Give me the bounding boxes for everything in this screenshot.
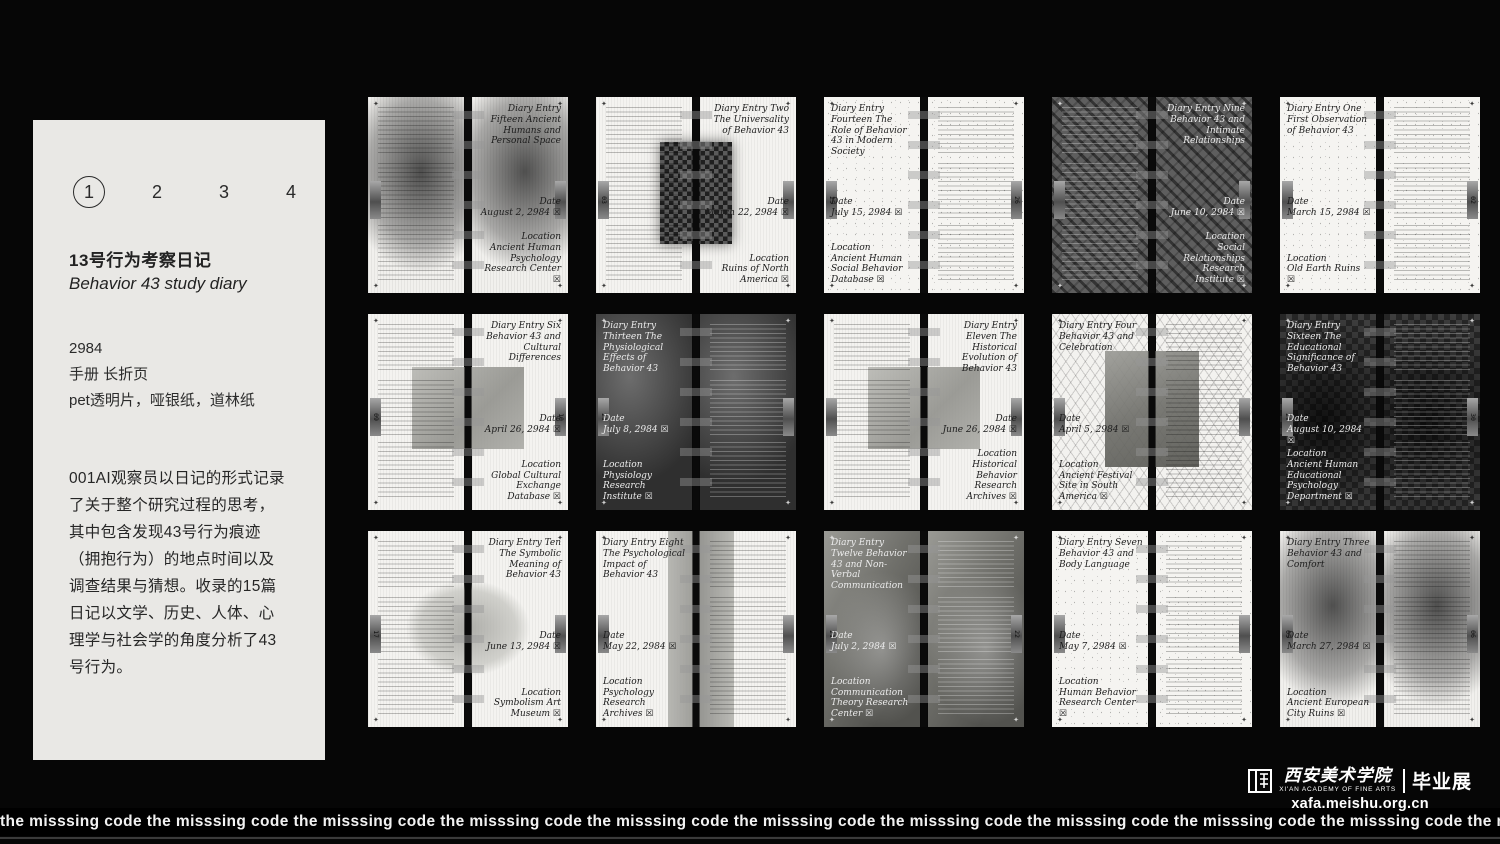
diary-entry-location: Location Ruins of North America ☒ (705, 254, 789, 286)
location-value: Human Behavior Research Center (1059, 688, 1136, 709)
micro-text-block (606, 225, 682, 281)
location-label: Location (933, 449, 1017, 460)
micro-text-block (1394, 597, 1470, 655)
diary-entry-date: Date March 15, 2984 ☒ (1287, 197, 1371, 219)
checkbox-icon: ☒ (1121, 425, 1129, 435)
diary-entry-location: Location Ancient Human Psychology Resear… (477, 232, 561, 286)
date-value: March 15, 2984 (1287, 208, 1360, 218)
spreads-grid: ✦ ✦ ✦ ✦ Diary Entry Fifteen Ancient Huma… (368, 97, 1480, 727)
date-value: July 2, 2984 (831, 642, 886, 652)
location-label: Location (1287, 688, 1371, 699)
date-value: May 7, 2984 (1059, 642, 1116, 652)
diary-spread: ✦ ✦ ✦ ✦ Diary Entry Eleven The Historica… (824, 314, 1024, 510)
location-label: Location (1059, 677, 1143, 688)
date-value: June 26, 2984 (943, 425, 1006, 435)
diary-entry-date: Date July 8, 2984 ☒ (603, 414, 687, 436)
location-label: Location (603, 460, 687, 471)
sparkle-icon: ✦ (373, 317, 379, 325)
checkbox-icon: ☒ (660, 425, 668, 435)
diary-entry-location: Location Psychology Research Archives ☒ (603, 677, 687, 720)
checkbox-icon: ☒ (888, 642, 896, 652)
micro-text-block (938, 107, 1014, 153)
sparkle-icon: ✦ (601, 100, 607, 108)
sparkle-icon: ✦ (373, 282, 379, 290)
sparkle-icon: ✦ (1469, 100, 1475, 108)
page-edge-tab: 17 (370, 615, 381, 653)
location-value: Global Cultural Exchange Database (491, 471, 561, 503)
diary-entry-date: Date April 5, 2984 ☒ (1059, 414, 1143, 436)
ticker-text: the misssing code the misssing code the … (0, 808, 1500, 836)
location-label: Location (1287, 449, 1371, 460)
date-label: Date (1161, 197, 1245, 208)
checkbox-icon: ☒ (668, 642, 676, 652)
checkbox-icon: ☒ (1059, 709, 1067, 719)
page-number: 09 (371, 413, 379, 421)
checkbox-icon: ☒ (1363, 642, 1371, 652)
spread-page-right: ✦ ✦ (1156, 314, 1252, 510)
micro-text-block (710, 659, 786, 715)
diary-entry-date: Date August 10, 2984 ☒ (1287, 414, 1371, 446)
sparkle-icon: ✦ (785, 317, 791, 325)
diary-spread: ✦ ✦ 23 ✦ ✦ Diary Entry Thirteen The Phys… (596, 314, 796, 510)
micro-text-block (938, 541, 1014, 587)
location-value: Symbolism Art Museum (494, 698, 561, 719)
sparkle-icon: ✦ (373, 534, 379, 542)
diary-entry-location: Location Historical Behavior Research Ar… (933, 449, 1017, 503)
date-label: Date (705, 197, 789, 208)
micro-text-block (378, 225, 454, 281)
diary-entry-title: Diary Entry Seven Behavior 43 and Body L… (1059, 538, 1143, 570)
micro-text-block (1394, 225, 1470, 281)
checkbox-icon: ☒ (1337, 709, 1345, 719)
micro-text-block (1062, 225, 1138, 281)
page-edge-tab (783, 615, 794, 653)
sparkle-icon: ✦ (601, 282, 607, 290)
diary-entry-date: Date May 22, 2984 ☒ (603, 631, 687, 653)
page-number: 22 (1012, 630, 1020, 638)
location-value: Ancient Human Psychology Research Center (484, 243, 561, 275)
page-edge-tab (370, 181, 381, 219)
location-label: Location (477, 460, 561, 471)
project-meta: 2984 手册 长折页 pet透明片，哑银纸，道林纸 (69, 336, 325, 414)
location-label: Location (831, 243, 915, 254)
sparkle-icon: ✦ (1241, 499, 1247, 507)
diary-entry-date: Date June 26, 2984 ☒ (933, 414, 1017, 436)
date-value: August 10, 2984 (1287, 425, 1362, 435)
diary-entry-date: Date April 26, 2984 ☒ (477, 414, 561, 436)
micro-text-block (1166, 597, 1242, 655)
diary-spread: ✦ ✦ ✦ ✦ Diary Entry Four Behavior 43 and… (1052, 314, 1252, 510)
page-edge-tab (783, 398, 794, 436)
academy-name-cn: 西安美术学院 (1284, 768, 1392, 785)
diary-entry-date: Date July 2, 2984 ☒ (831, 631, 915, 653)
sparkle-icon: ✦ (1469, 499, 1475, 507)
checkbox-icon: ☒ (1287, 275, 1295, 285)
project-title-en: Behavior 43 study diary (69, 274, 325, 294)
sparkle-icon: ✦ (1013, 716, 1019, 724)
date-label: Date (477, 414, 561, 425)
location-label: Location (477, 688, 561, 699)
micro-text-block (378, 380, 454, 438)
diary-spread: ✦ ✦ ✦ ✦ Diary Entry Seven Behavior 43 an… (1052, 531, 1252, 727)
diary-entry-location: Location Ancient European City Ruins ☒ (1287, 688, 1371, 720)
micro-text-block (710, 541, 786, 587)
checkbox-icon: ☒ (645, 709, 653, 719)
diary-spread: ✦ ✦ 29 ✦ ✦ 30 Diary Entry Sixteen The Ed… (1280, 314, 1480, 510)
page-edge-tab: 26 (1011, 181, 1022, 219)
brand-divider (1403, 769, 1405, 793)
sparkle-icon: ✦ (1057, 282, 1063, 290)
diary-entry-title: Diary Entry Thirteen The Physiological E… (603, 321, 687, 375)
diary-entry-title: Diary Entry Twelve Behavior 43 and Non-V… (831, 538, 915, 592)
date-value: April 26, 2984 (485, 425, 550, 435)
sparkle-icon: ✦ (1469, 282, 1475, 290)
diary-spread: ✦ ✦ 17 ✦ ✦ Diary Entry Ten The Symbolic … (368, 531, 568, 727)
micro-text-block (378, 659, 454, 715)
spread-page-right: ✦ ✦ 22 (928, 531, 1024, 727)
sparkle-icon: ✦ (785, 716, 791, 724)
project-info-panel: 1234 13号行为考察日记 Behavior 43 study diary 2… (33, 120, 325, 760)
micro-text-block (938, 659, 1014, 715)
date-value: June 10, 2984 (1171, 208, 1234, 218)
sparkle-icon: ✦ (785, 534, 791, 542)
spread-page-right: ✦ ✦ (700, 314, 796, 510)
sparkle-icon: ✦ (1469, 534, 1475, 542)
project-materials: pet透明片，哑银纸，道林纸 (69, 388, 325, 414)
diary-spread: ✦ ✦ 03 ✦ ✦ Diary Entry Two The Universal… (596, 97, 796, 293)
exhibition-url[interactable]: xafa.meishu.org.cn (1291, 796, 1429, 812)
micro-text-block (710, 597, 786, 655)
exhibition-brand: 西安美术学院 XI'AN ACADEMY OF FINE ARTS 毕业展 xa… (1248, 767, 1472, 812)
diary-entry-location: Location Ancient Human Social Behavior D… (831, 243, 915, 286)
micro-text-block (1166, 541, 1242, 587)
diary-entry-title: Diary Entry Sixteen The Educational Sign… (1287, 321, 1371, 375)
micro-text-block (834, 442, 910, 498)
date-value: March 22, 2984 (705, 208, 778, 218)
bottom-divider (0, 837, 1500, 839)
diary-spread: ✦ ✦ 25 ✦ ✦ 26 Diary Entry Fourteen The R… (824, 97, 1024, 293)
page-edge-tab: 03 (598, 181, 609, 219)
page-edge-tab (1239, 398, 1250, 436)
sparkle-icon: ✦ (1469, 317, 1475, 325)
checkbox-icon: ☒ (553, 275, 561, 285)
date-label: Date (477, 197, 561, 208)
spread-page-right: ✦ ✦ (700, 531, 796, 727)
project-title-cn: 13号行为考察日记 (69, 246, 325, 271)
diary-entry-title: Diary Entry Eleven The Historical Evolut… (933, 321, 1017, 375)
micro-text-block (1394, 541, 1470, 587)
page-number: 03 (599, 196, 607, 204)
micro-text-block (378, 163, 454, 221)
diary-entry-date: Date July 15, 2984 ☒ (831, 197, 915, 219)
pagination-item-4[interactable]: 4 (276, 177, 306, 207)
spread-page-left: ✦ ✦ 03 (596, 97, 692, 293)
diary-entry-date: Date March 22, 2984 ☒ (705, 197, 789, 219)
micro-text-block (1062, 107, 1138, 153)
diary-spread: ✦ ✦ 05 ✦ ✦ 06 Diary Entry Three Behavior… (1280, 531, 1480, 727)
location-label: Location (1161, 232, 1245, 243)
checkbox-icon: ☒ (1009, 492, 1017, 502)
micro-text-block (1062, 163, 1138, 221)
academy-name-en: XI'AN ACADEMY OF FINE ARTS (1279, 787, 1396, 794)
diary-entry-title: Diary Entry One First Observation of Beh… (1287, 104, 1371, 136)
diary-entry-location: Location Symbolism Art Museum ☒ (477, 688, 561, 720)
spread-page-left: ✦ ✦ (1052, 97, 1148, 293)
micro-text-block (938, 163, 1014, 221)
spread-page-right: ✦ ✦ 30 (1384, 314, 1480, 510)
checkbox-icon: ☒ (553, 492, 561, 502)
micro-text-block (1394, 442, 1470, 498)
project-description: 001AI观察员以日记的形式记录了关于整个研究过程的思考，其中包含发现43号行为… (69, 466, 289, 682)
date-label: Date (1059, 631, 1143, 642)
page-edge-tab: 06 (1467, 615, 1478, 653)
checkbox-icon: ☒ (1237, 275, 1245, 285)
project-year: 2984 (69, 336, 325, 362)
spread-page-left: ✦ ✦ 09 (368, 314, 464, 510)
diary-entry-location: Location Social Relationships Research I… (1161, 232, 1245, 286)
exhibition-label: 毕业展 (1412, 767, 1472, 794)
date-label: Date (1287, 414, 1371, 425)
diary-spread: ✦ ✦ 09 ✦ ✦ 10 Diary Entry Six Behavior 4… (368, 314, 568, 510)
checkbox-icon: ☒ (1345, 492, 1353, 502)
checkbox-icon: ☒ (1287, 436, 1295, 446)
diary-entry-title: Diary Entry Four Behavior 43 and Celebra… (1059, 321, 1143, 353)
sparkle-icon: ✦ (373, 100, 379, 108)
date-value: March 27, 2984 (1287, 642, 1360, 652)
micro-text-block (378, 541, 454, 587)
diary-entry-title: Diary Entry Six Behavior 43 and Cultural… (477, 321, 561, 364)
diary-entry-location: Location Communication Theory Research C… (831, 677, 915, 720)
sparkle-icon: ✦ (1013, 100, 1019, 108)
checkbox-icon: ☒ (1363, 208, 1371, 218)
checkbox-icon: ☒ (1100, 492, 1108, 502)
diary-spread: ✦ ✦ ✦ ✦ Diary Entry Eight The Psychologi… (596, 531, 796, 727)
diary-entry-location: Location Ancient Human Educational Psych… (1287, 449, 1371, 503)
page-edge-tab (826, 398, 837, 436)
spread-page-left: ✦ ✦ (824, 314, 920, 510)
page-root: 1234 13号行为考察日记 Behavior 43 study diary 2… (0, 0, 1500, 844)
micro-text-block (378, 107, 454, 153)
diary-entry-location: Location Ancient Festival Site in South … (1059, 460, 1143, 503)
location-value: Ancient Human Social Behavior Database (831, 254, 902, 286)
sparkle-icon: ✦ (1013, 282, 1019, 290)
micro-text-block (1166, 442, 1242, 498)
page-number: 30 (1468, 413, 1476, 421)
diary-entry-location: Location Physiology Research Institute ☒ (603, 460, 687, 503)
diary-entry-title: Diary Entry Ten The Symbolic Meaning of … (477, 538, 561, 581)
checkbox-icon: ☒ (865, 709, 873, 719)
date-label: Date (831, 631, 915, 642)
checkbox-icon: ☒ (553, 425, 561, 435)
checkbox-icon: ☒ (645, 492, 653, 502)
diary-entry-date: Date June 13, 2984 ☒ (477, 631, 561, 653)
micro-text-block (606, 163, 682, 221)
page-number: 02 (1468, 196, 1476, 204)
diary-spread: ✦ ✦ ✦ ✦ Diary Entry Fifteen Ancient Huma… (368, 97, 568, 293)
micro-text-block (710, 324, 786, 370)
date-value: June 13, 2984 (487, 642, 550, 652)
sparkle-icon: ✦ (373, 499, 379, 507)
micro-text-block (1394, 163, 1470, 221)
checkbox-icon: ☒ (553, 208, 561, 218)
date-value: April 5, 2984 (1059, 425, 1119, 435)
page-edge-tab: 30 (1467, 398, 1478, 436)
location-label: Location (603, 677, 687, 688)
sparkle-icon: ✦ (373, 716, 379, 724)
pagination-item-1[interactable]: 1 (73, 176, 105, 208)
spread-page-right: ✦ ✦ 02 (1384, 97, 1480, 293)
location-label: Location (477, 232, 561, 243)
micro-text-block (1394, 107, 1470, 153)
micro-text-block (1166, 324, 1242, 370)
diary-entry-date: Date May 7, 2984 ☒ (1059, 631, 1143, 653)
sparkle-icon: ✦ (1057, 100, 1063, 108)
diary-spread: ✦ ✦ ✦ ✦ Diary Entry Nine Behavior 43 and… (1052, 97, 1252, 293)
sparkle-icon: ✦ (1241, 534, 1247, 542)
pagination-item-3[interactable]: 3 (209, 177, 239, 207)
location-value: Ancient Festival Site in South America (1059, 471, 1132, 503)
pagination: 1234 (73, 176, 325, 208)
location-label: Location (705, 254, 789, 265)
date-label: Date (603, 631, 687, 642)
micro-text-block (1394, 324, 1470, 370)
page-edge-tab (1239, 615, 1250, 653)
micro-text-block (606, 107, 682, 153)
diary-spread: ✦ ✦ 21 ✦ ✦ 22 Diary Entry Twelve Behavio… (824, 531, 1024, 727)
date-label: Date (1287, 631, 1371, 642)
spread-page-right: ✦ ✦ 26 (928, 97, 1024, 293)
micro-text-block (378, 324, 454, 370)
date-label: Date (603, 414, 687, 425)
page-edge-tab (1054, 181, 1065, 219)
checkbox-icon: ☒ (1237, 208, 1245, 218)
diary-entry-date: Date August 2, 2984 ☒ (477, 197, 561, 219)
micro-text-block (1166, 380, 1242, 438)
checkbox-icon: ☒ (877, 275, 885, 285)
diary-entry-title: Diary Entry Fifteen Ancient Humans and P… (477, 104, 561, 147)
diary-entry-location: Location Human Behavior Research Center … (1059, 677, 1143, 720)
date-label: Date (1059, 414, 1143, 425)
micro-text-block (1394, 659, 1470, 715)
location-value: Old Earth Ruins (1287, 264, 1360, 274)
diary-entry-title: Diary Entry Two The Universality of Beha… (705, 104, 789, 136)
spread-page-right: ✦ ✦ (1156, 531, 1252, 727)
checkbox-icon: ☒ (894, 208, 902, 218)
page-edge-tab: 09 (370, 398, 381, 436)
checkbox-icon: ☒ (781, 208, 789, 218)
diary-entry-title: Diary Entry Three Behavior 43 and Comfor… (1287, 538, 1371, 570)
diary-entry-location: Location Global Cultural Exchange Databa… (477, 460, 561, 503)
location-value: Social Relationships Research Institute (1183, 243, 1245, 285)
date-value: July 15, 2984 (831, 208, 891, 218)
location-label: Location (1287, 254, 1371, 265)
checkbox-icon: ☒ (781, 275, 789, 285)
checkbox-icon: ☒ (1009, 425, 1017, 435)
date-value: July 8, 2984 (603, 425, 658, 435)
academy-seal-icon (1248, 769, 1272, 793)
micro-text-block (1394, 380, 1470, 438)
page-edge-tab: 02 (1467, 181, 1478, 219)
date-value: August 2, 2984 (481, 208, 550, 218)
micro-text-block (938, 225, 1014, 281)
date-label: Date (1287, 197, 1371, 208)
micro-text-block (1166, 659, 1242, 715)
project-format: 手册 长折页 (69, 362, 325, 388)
spread-page-right: ✦ ✦ 06 (1384, 531, 1480, 727)
page-number: 17 (371, 630, 379, 638)
micro-text-block (710, 380, 786, 438)
sparkle-icon: ✦ (829, 317, 835, 325)
diary-entry-title: Diary Entry Eight The Psychological Impa… (603, 538, 687, 581)
micro-text-block (710, 442, 786, 498)
micro-text-block (378, 442, 454, 498)
page-number: 06 (1468, 630, 1476, 638)
checkbox-icon: ☒ (553, 709, 561, 719)
spread-page-left: ✦ ✦ 17 (368, 531, 464, 727)
pagination-item-2[interactable]: 2 (142, 177, 172, 207)
micro-text-block (834, 380, 910, 438)
micro-text-block (378, 597, 454, 655)
date-label: Date (831, 197, 915, 208)
spread-page-left: ✦ ✦ (368, 97, 464, 293)
sparkle-icon: ✦ (829, 499, 835, 507)
date-value: May 22, 2984 (603, 642, 666, 652)
sparkle-icon: ✦ (1241, 317, 1247, 325)
sparkle-icon: ✦ (1469, 716, 1475, 724)
micro-text-block (938, 597, 1014, 655)
date-label: Date (477, 631, 561, 642)
diary-entry-date: Date June 10, 2984 ☒ (1161, 197, 1245, 219)
micro-text-block (834, 324, 910, 370)
date-label: Date (933, 414, 1017, 425)
sparkle-icon: ✦ (1241, 716, 1247, 724)
page-edge-tab: 22 (1011, 615, 1022, 653)
location-label: Location (1059, 460, 1143, 471)
diary-spread: ✦ ✦ ✦ ✦ 02 Diary Entry One First Observa… (1280, 97, 1480, 293)
checkbox-icon: ☒ (1119, 642, 1127, 652)
location-value: Ancient European City Ruins (1287, 698, 1369, 719)
page-number: 26 (1012, 196, 1020, 204)
sparkle-icon: ✦ (1013, 534, 1019, 542)
sparkle-icon: ✦ (785, 499, 791, 507)
diary-entry-title: Diary Entry Nine Behavior 43 and Intimat… (1161, 104, 1245, 147)
diary-entry-date: Date March 27, 2984 ☒ (1287, 631, 1371, 653)
diary-entry-title: Diary Entry Fourteen The Role of Behavio… (831, 104, 915, 158)
diary-entry-location: Location Old Earth Ruins ☒ (1287, 254, 1371, 286)
location-label: Location (831, 677, 915, 688)
checkbox-icon: ☒ (553, 642, 561, 652)
location-value: Ruins of North America (722, 264, 789, 285)
